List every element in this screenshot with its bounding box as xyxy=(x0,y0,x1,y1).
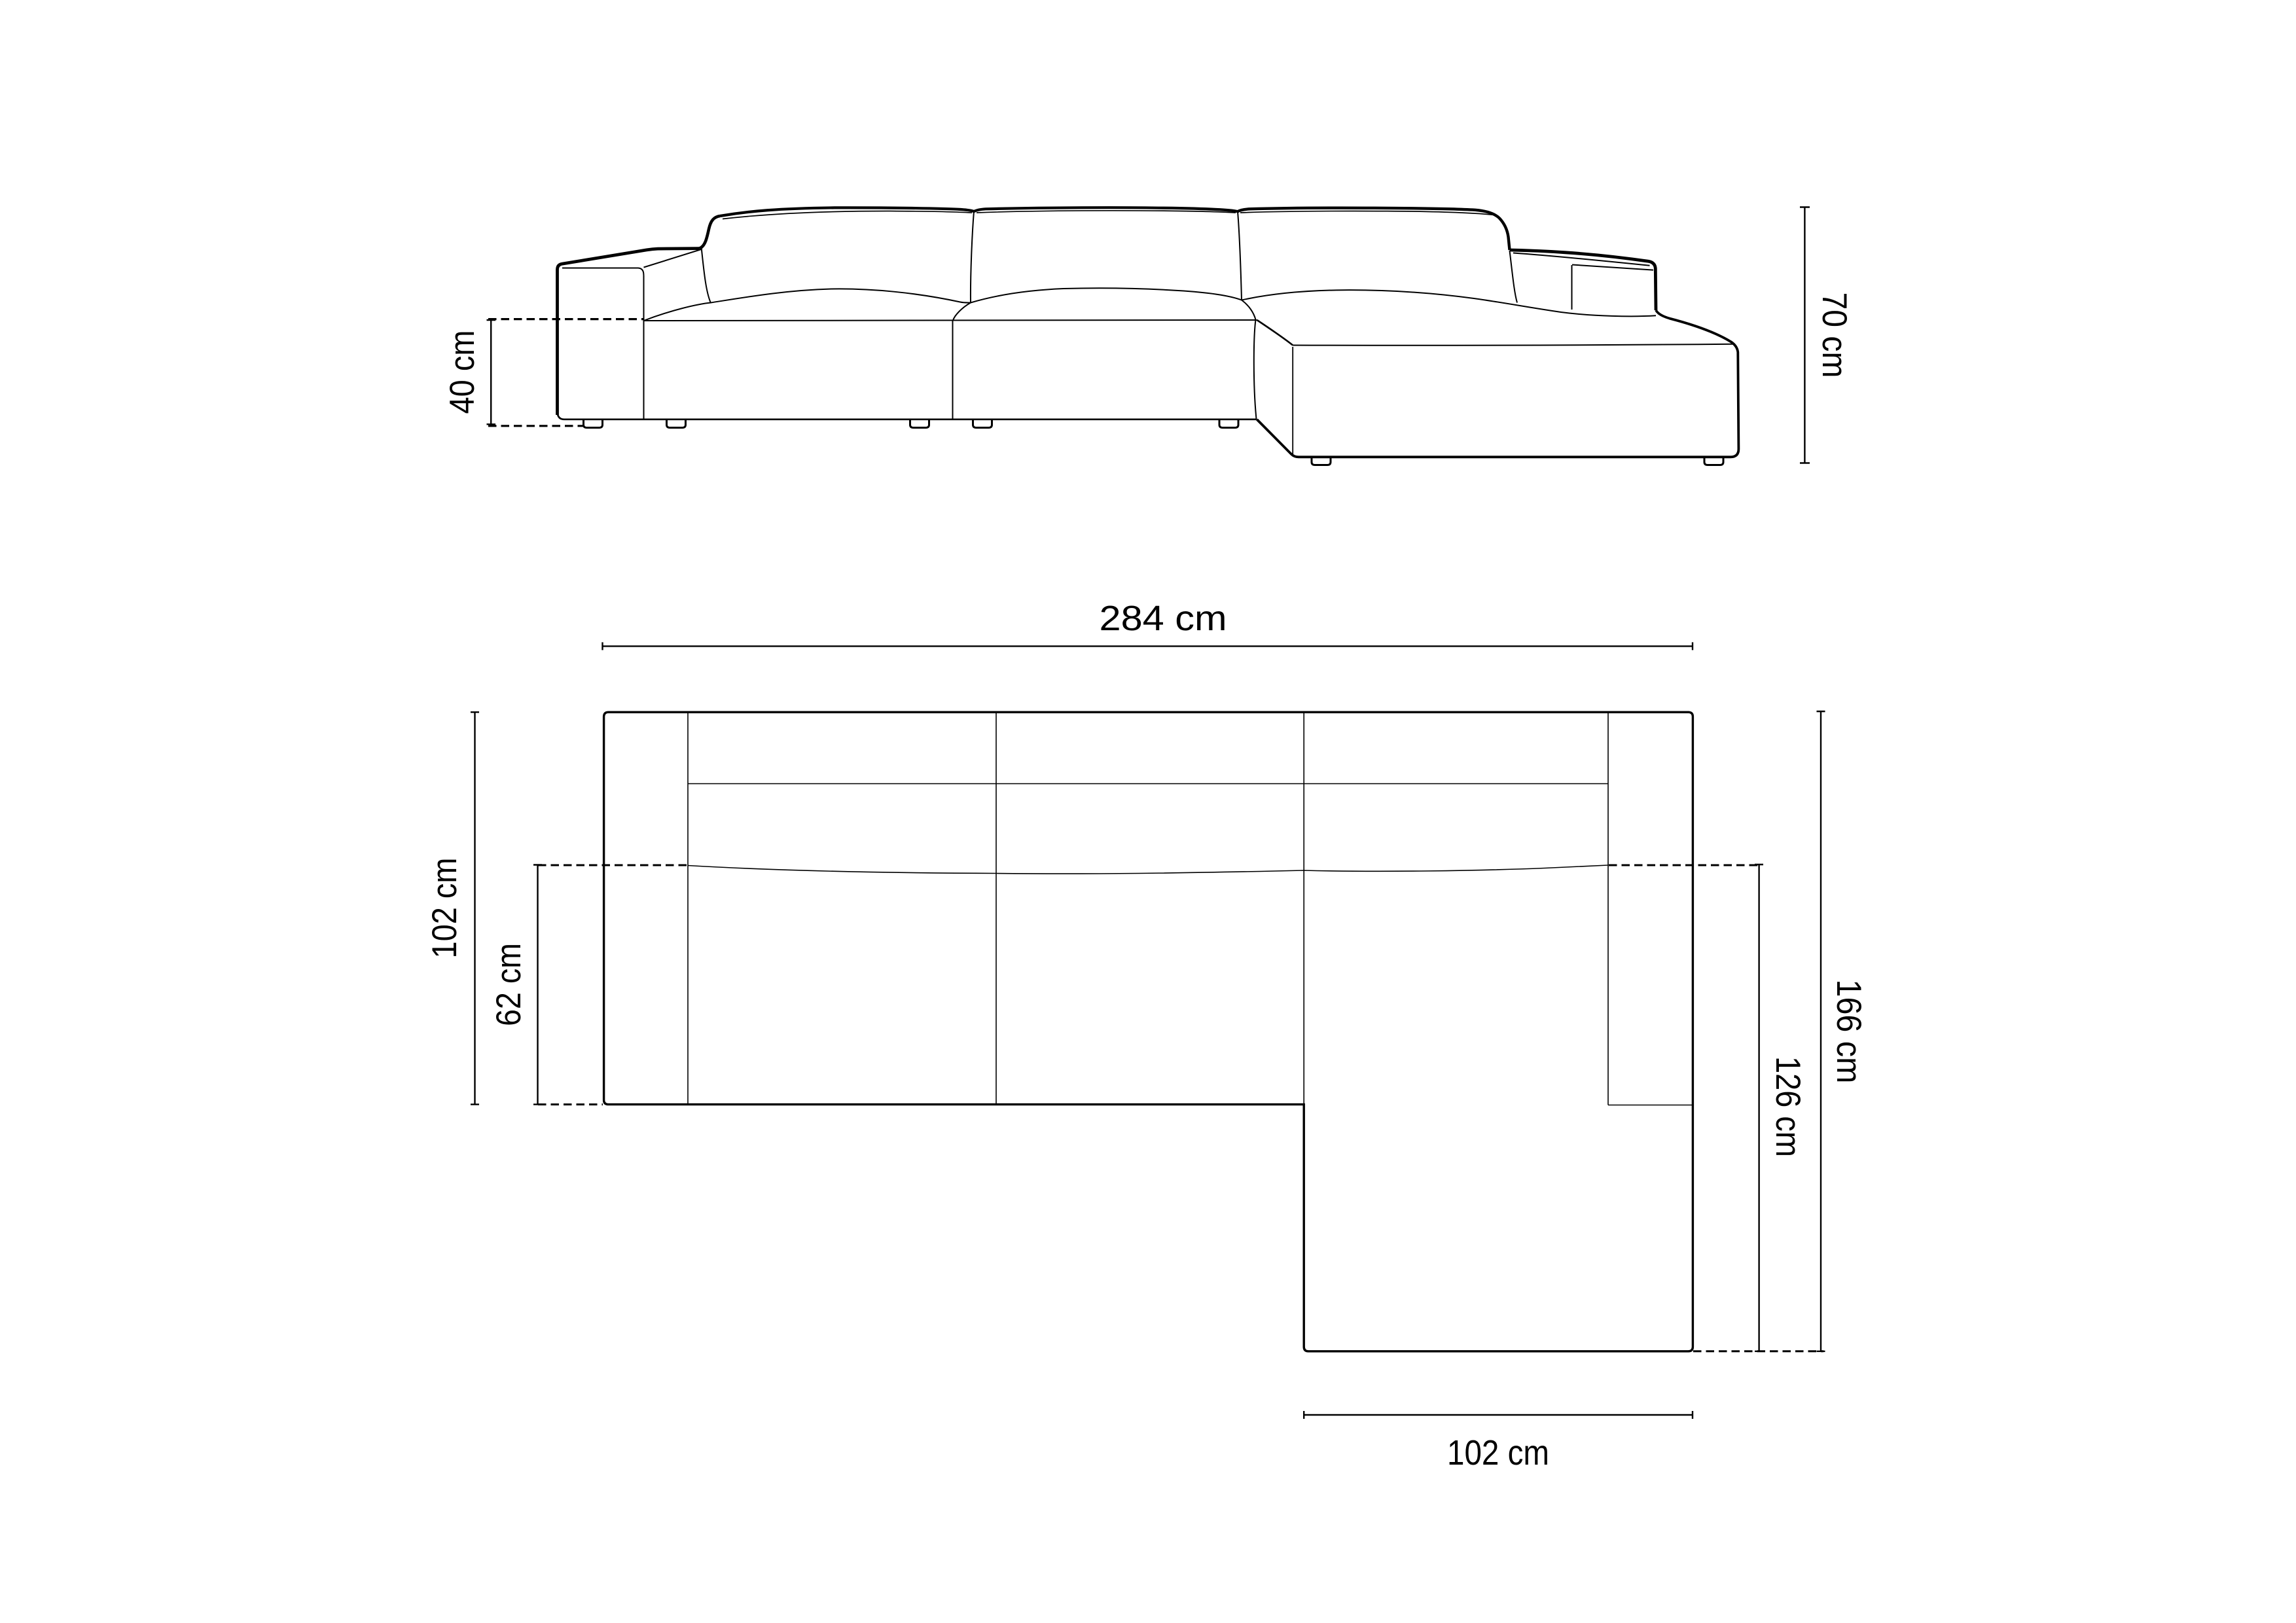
svg-text:102 cm: 102 cm xyxy=(1447,1433,1549,1472)
svg-text:166 cm: 166 cm xyxy=(1829,980,1868,1084)
svg-text:284 cm: 284 cm xyxy=(1100,599,1227,638)
svg-text:126 cm: 126 cm xyxy=(1768,1056,1807,1157)
svg-text:40 cm: 40 cm xyxy=(443,330,482,414)
svg-text:70 cm: 70 cm xyxy=(1815,293,1854,378)
svg-text:62 cm: 62 cm xyxy=(490,943,528,1026)
svg-text:102 cm: 102 cm xyxy=(425,858,464,959)
